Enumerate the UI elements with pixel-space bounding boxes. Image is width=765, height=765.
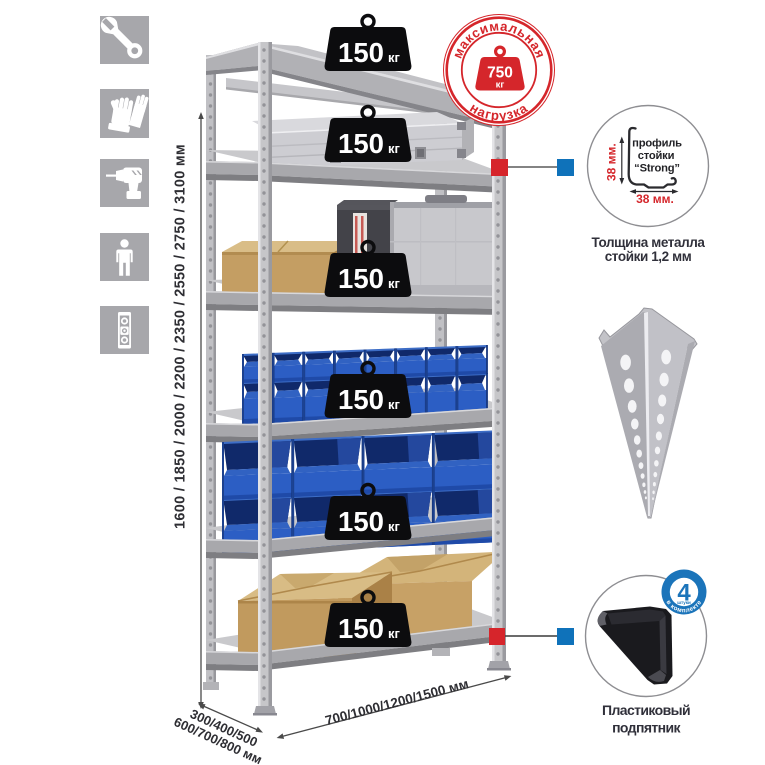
svg-text:150: 150 (338, 128, 384, 159)
svg-text:Пластиковый: Пластиковый (602, 702, 690, 718)
svg-text:150: 150 (338, 613, 384, 644)
svg-text:кг: кг (388, 141, 401, 156)
svg-text:150: 150 (338, 384, 384, 415)
svg-text:38 мм.: 38 мм. (636, 192, 674, 206)
svg-text:кг: кг (388, 50, 401, 65)
svg-text:стойки 1,2 мм: стойки 1,2 мм (605, 249, 692, 264)
svg-text:кг: кг (388, 519, 401, 534)
svg-text:Толщина металла: Толщина металла (591, 235, 705, 250)
svg-text:профиль: профиль (632, 138, 682, 150)
svg-text:штуки: штуки (677, 600, 691, 605)
svg-text:кг: кг (388, 276, 401, 291)
svg-text:подпятник: подпятник (612, 720, 681, 736)
svg-text:38 мм.: 38 мм. (605, 143, 619, 181)
svg-text:150: 150 (338, 506, 384, 537)
svg-text:150: 150 (338, 263, 384, 294)
svg-text:кг: кг (388, 397, 401, 412)
svg-text:150: 150 (338, 37, 384, 68)
svg-text:“Strong”: “Strong” (634, 163, 680, 175)
svg-text:кг: кг (388, 626, 401, 641)
svg-text:кг: кг (496, 80, 505, 91)
svg-text:стойки: стойки (638, 150, 675, 162)
svg-text:1600 / 1850 / 2000 / 2200 / 23: 1600 / 1850 / 2000 / 2200 / 2350 / 2550 … (173, 144, 189, 529)
